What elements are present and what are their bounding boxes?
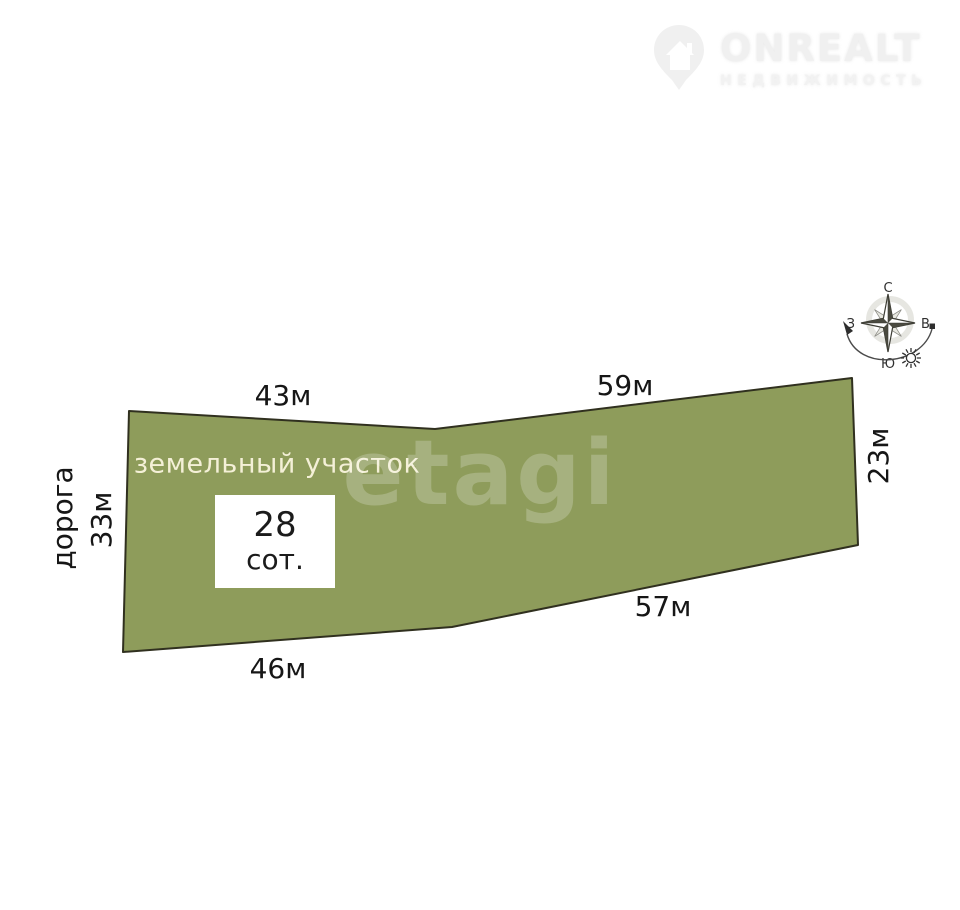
dimension-label-left: 33м xyxy=(88,492,116,549)
dimension-label-bottom-left: 46м xyxy=(250,655,307,683)
compass-label-north: С xyxy=(883,281,892,296)
sun-path-start-marker xyxy=(930,324,936,330)
land-plot-scheme: ONREALT НЕДВИЖИМОСТЬ С З В Ю xyxy=(0,0,960,910)
road-label: дорога xyxy=(49,466,77,569)
plot-title: земельный участок xyxy=(134,449,421,480)
dimension-label-top-left: 43м xyxy=(255,382,312,410)
area-unit: сот. xyxy=(246,545,304,576)
dimension-label-right: 23м xyxy=(865,428,893,485)
area-box: 28 сот. xyxy=(215,495,335,588)
dimension-label-bottom-right: 57м xyxy=(635,593,692,621)
compass-axes xyxy=(861,294,915,352)
compass-rose: С З В Ю xyxy=(843,281,935,372)
compass-label-east: В xyxy=(921,317,930,332)
area-value: 28 xyxy=(253,507,296,544)
dimension-label-top-right: 59м xyxy=(597,372,654,400)
sun-icon xyxy=(901,348,921,368)
